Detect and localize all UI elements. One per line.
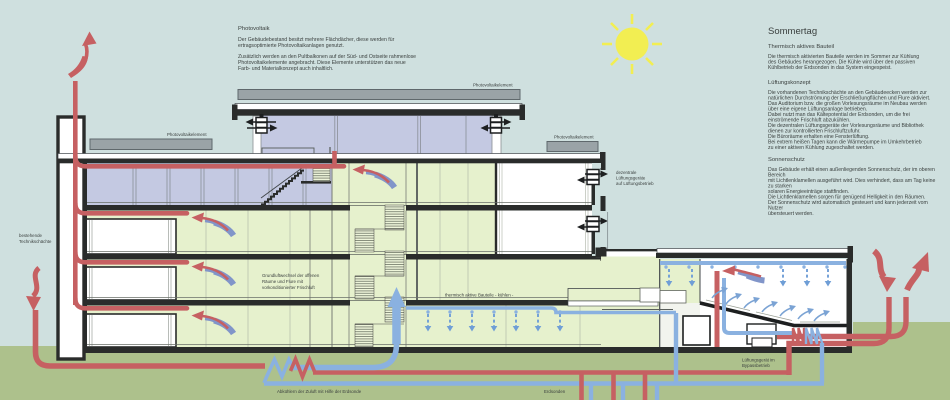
svg-text:zu einer aktiven Kühlung zuges: zu einer aktiven Kühlung zugeschaltet we…	[768, 145, 874, 151]
svg-text:bestehende: bestehende	[19, 233, 43, 238]
svg-text:Der Sonnenschutz wird automati: Der Sonnenschutz wird automatisch gesteu…	[768, 200, 928, 206]
svg-text:Technikschächte: Technikschächte	[19, 239, 52, 244]
svg-text:mit Lichtlenklamellen ausgefüh: mit Lichtlenklamellen ausgeführt wird. D…	[768, 178, 935, 184]
svg-text:Thermisch aktives Bauteil: Thermisch aktives Bauteil	[768, 44, 834, 50]
svg-text:Sonnenschutz: Sonnenschutz	[768, 157, 805, 163]
svg-text:Photovoltaik: Photovoltaik	[238, 26, 270, 32]
svg-text:Lüftungsgeräte: Lüftungsgeräte	[616, 176, 646, 181]
svg-text:thermisch aktive Bauteile - kü: thermisch aktive Bauteile - kühlen -	[445, 293, 514, 298]
svg-text:vorkonditionierter Frischluft: vorkonditionierter Frischluft	[262, 285, 315, 290]
svg-text:ertragsoptimierte Photovoltaik: ertragsoptimierte Photovoltaikanlagen ge…	[238, 43, 344, 49]
svg-text:Räume und Flure mit: Räume und Flure mit	[262, 279, 304, 284]
svg-text:Das Gebäude erhält einen außen: Das Gebäude erhält einen außenliegenden …	[768, 167, 935, 173]
svg-text:übersteuert werden.: übersteuert werden.	[768, 211, 814, 217]
svg-text:Photovoltaikelement: Photovoltaikelement	[167, 132, 207, 137]
svg-text:Abkühlern der Zuluft mit Hilfe: Abkühlern der Zuluft mit Hilfe der Erdso…	[277, 389, 362, 394]
svg-text:Photovoltaikelement: Photovoltaikelement	[554, 135, 594, 140]
svg-text:dezentrale: dezentrale	[616, 170, 637, 175]
svg-text:Erdsonden: Erdsonden	[544, 389, 566, 394]
svg-text:Farb- und Materialkonzept auch: Farb- und Materialkonzept auch inhaltlic…	[238, 66, 333, 72]
svg-text:Kühlbetrieb der Erdsonden in d: Kühlbetrieb der Erdsonden in das System …	[768, 65, 892, 71]
svg-text:Grundluftwechsel der offenen: Grundluftwechsel der offenen	[262, 273, 320, 278]
svg-text:Lüftungsgerät im: Lüftungsgerät im	[742, 358, 775, 363]
svg-text:Sommertag: Sommertag	[768, 26, 817, 37]
svg-text:Bypassbetrieb: Bypassbetrieb	[742, 363, 770, 368]
svg-text:auf Lüftungsbetrieb: auf Lüftungsbetrieb	[616, 181, 654, 186]
svg-text:Lüftungskonzept: Lüftungskonzept	[768, 80, 811, 86]
svg-text:Photovoltaikelement: Photovoltaikelement	[473, 83, 513, 88]
